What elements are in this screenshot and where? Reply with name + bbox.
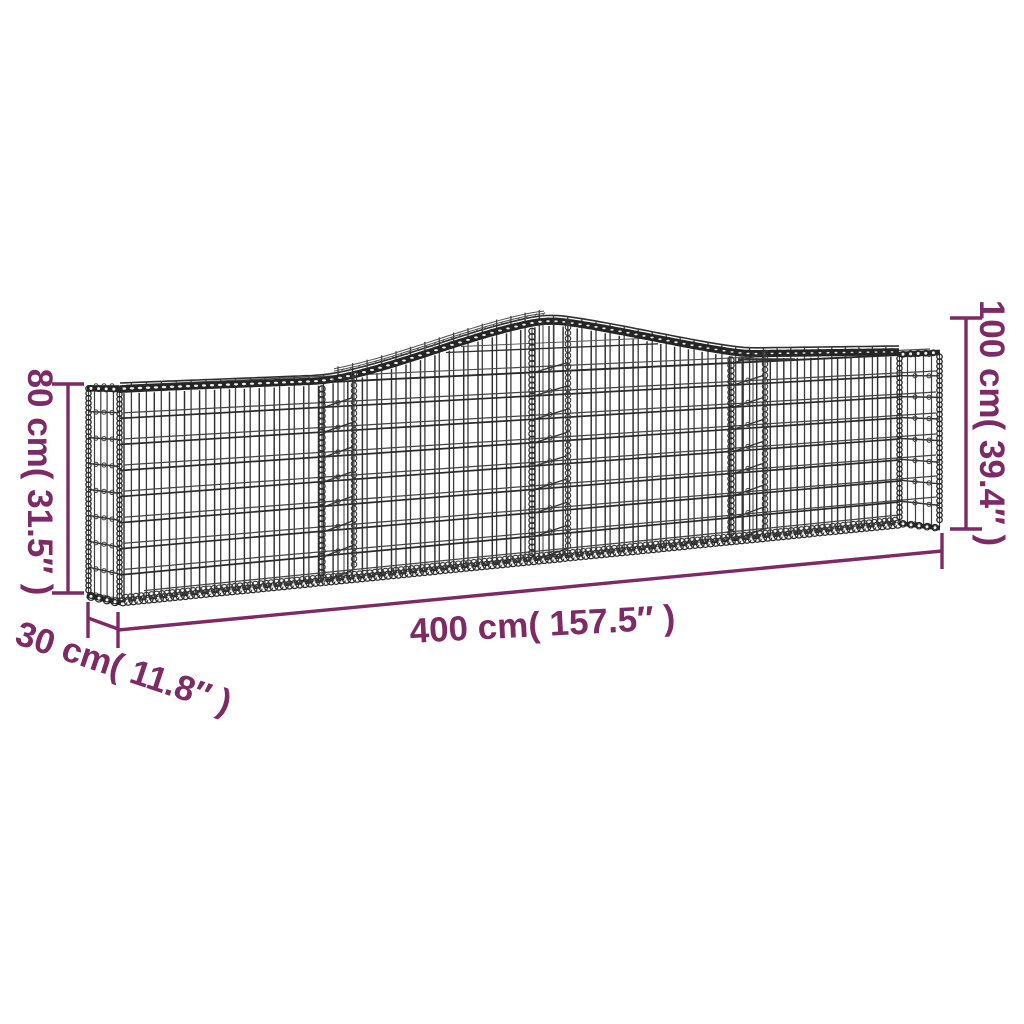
svg-text:100 cm( 39.4″ ): 100 cm( 39.4″ ) [972, 300, 1011, 546]
svg-text:80 cm( 31.5″ ): 80 cm( 31.5″ ) [20, 369, 59, 596]
